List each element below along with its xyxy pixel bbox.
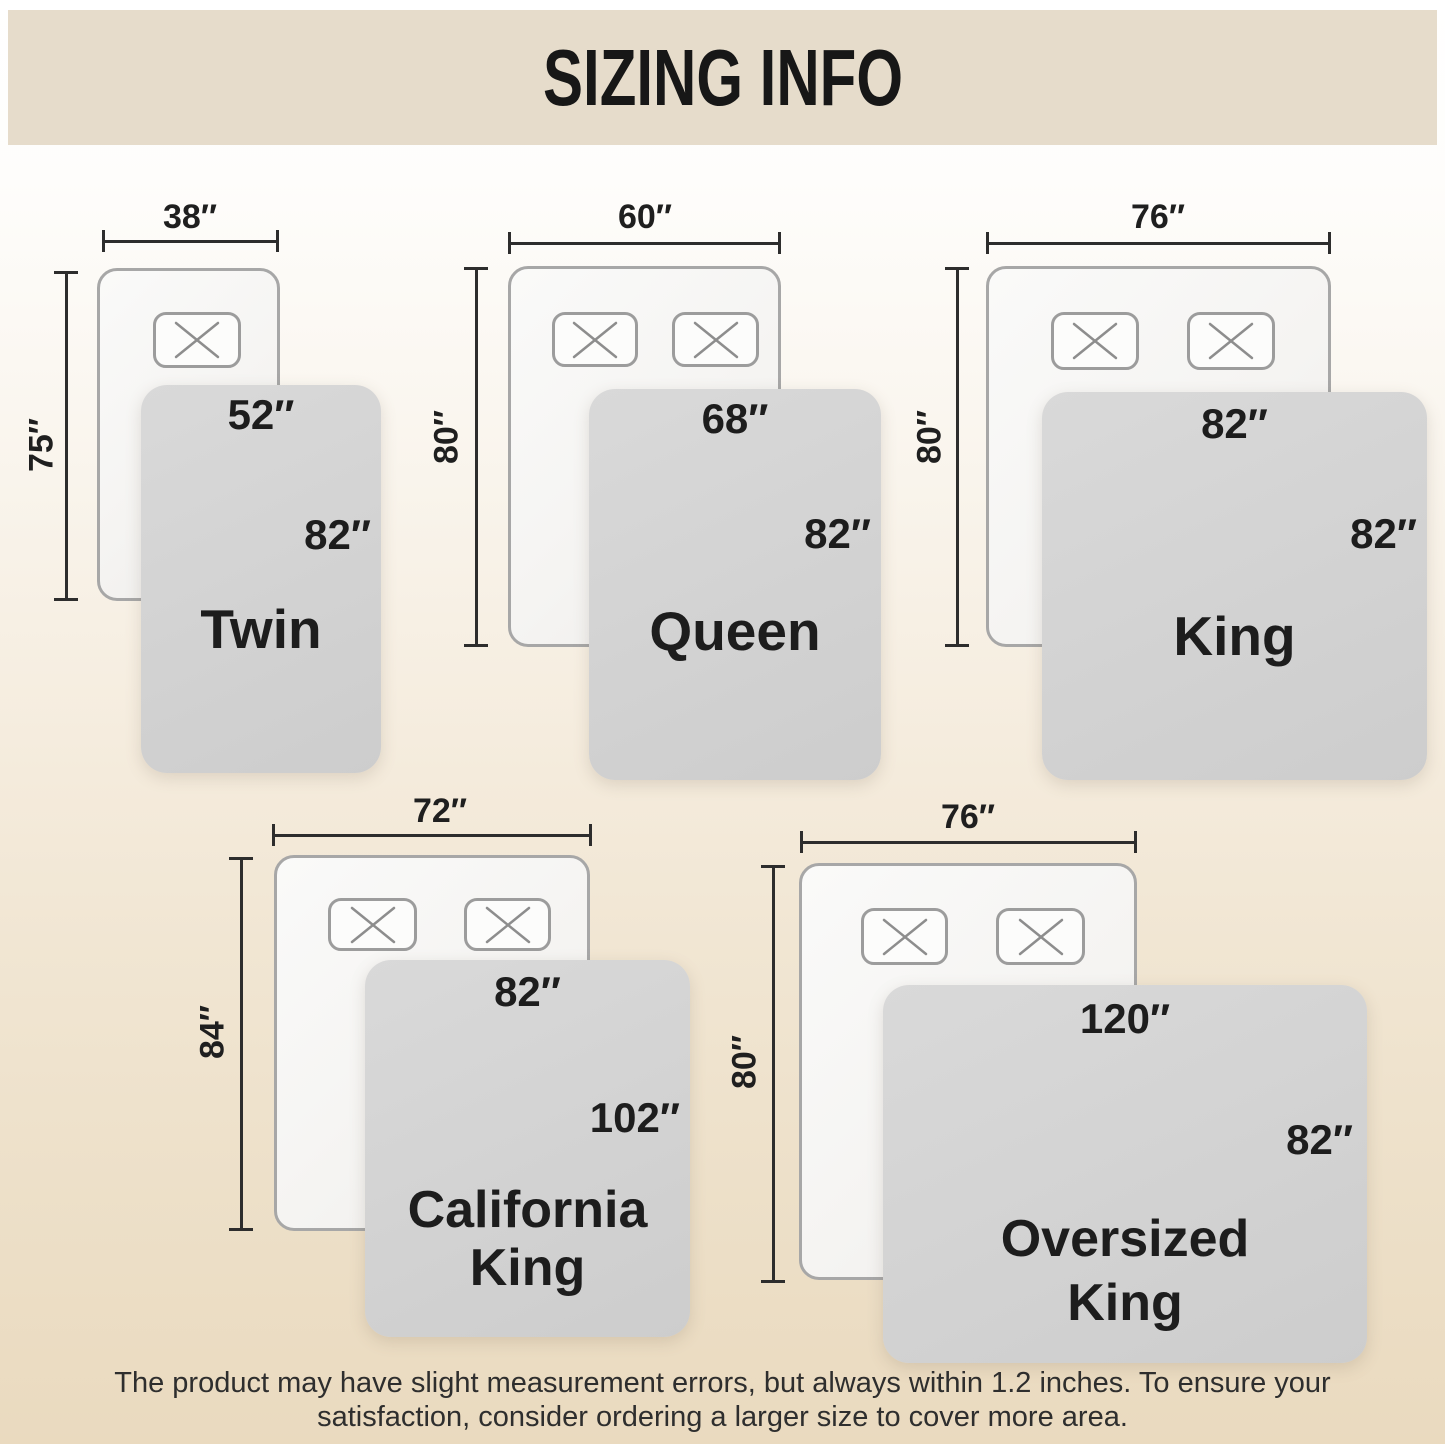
- footer-note-line1: The product may have slight measurement …: [0, 1366, 1445, 1400]
- pillow: [861, 908, 948, 965]
- blanket-width-label: 120″: [1080, 995, 1170, 1043]
- pillow-x-icon: [880, 916, 930, 958]
- bed-length-label: 80″: [911, 410, 950, 464]
- blanket-size-name-line2: King: [1067, 1274, 1183, 1332]
- blanket-length-label: 102″: [590, 1094, 680, 1142]
- length-dimension-line: [65, 271, 68, 601]
- pillow: [1187, 312, 1275, 370]
- pillow-x-icon: [348, 904, 398, 946]
- bed-width-label: 72″: [413, 792, 467, 831]
- pillow-x-icon: [1016, 916, 1066, 958]
- bed-width-label: 60″: [618, 198, 672, 237]
- bed-length-label: 80″: [726, 1035, 765, 1089]
- pillow-x-icon: [691, 319, 741, 361]
- blanket-width-label: 68″: [702, 395, 769, 443]
- blanket-length-label: 82″: [1350, 510, 1417, 558]
- bed-width-label: 76″: [1131, 198, 1185, 237]
- pillow-x-icon: [570, 319, 620, 361]
- pillow-x-icon: [483, 904, 533, 946]
- header-band: SIZING INFO: [8, 10, 1437, 145]
- blanket: 82″ 82″ King: [1042, 392, 1427, 780]
- pillow: [552, 312, 638, 367]
- pillow-x-icon: [172, 319, 222, 361]
- bed-width-label: 38″: [163, 198, 217, 237]
- bed-length-label: 75″: [23, 418, 62, 472]
- blanket-size-name: Twin: [200, 597, 321, 661]
- length-dimension-line: [956, 267, 959, 647]
- length-dimension-line: [772, 865, 775, 1283]
- blanket-size-name-line1: California: [408, 1181, 648, 1239]
- pillow: [996, 908, 1085, 965]
- blanket: 52″ 82″ Twin: [141, 385, 381, 773]
- sizing-info-infographic: SIZING INFO 38″ 75″ 52″ 82″ Twin 60″ 80″: [0, 0, 1445, 1444]
- pillow-x-icon: [1206, 320, 1256, 362]
- pillow: [464, 898, 551, 951]
- pillow: [153, 312, 241, 368]
- bed-length-label: 84″: [194, 1005, 233, 1059]
- pillow-x-icon: [1070, 320, 1120, 362]
- pillow: [328, 898, 417, 951]
- blanket-size-name: Oversized King: [1001, 1207, 1250, 1335]
- blanket-width-label: 82″: [1201, 400, 1268, 448]
- blanket-length-label: 82″: [804, 510, 871, 558]
- blanket-width-label: 82″: [494, 968, 561, 1016]
- footer-note: The product may have slight measurement …: [0, 1366, 1445, 1434]
- width-dimension-line: [508, 242, 781, 245]
- bed-width-label: 76″: [941, 798, 995, 837]
- width-dimension-line: [272, 834, 592, 837]
- pillow: [672, 312, 759, 367]
- width-dimension-line: [986, 242, 1331, 245]
- blanket: 82″ 102″ California King: [365, 960, 690, 1337]
- width-dimension-line: [102, 240, 279, 243]
- footer-note-line2: satisfaction, consider ordering a larger…: [0, 1400, 1445, 1434]
- bed-length-label: 80″: [428, 410, 467, 464]
- blanket: 68″ 82″ Queen: [589, 389, 881, 780]
- blanket-size-name-line1: Oversized: [1001, 1210, 1250, 1268]
- width-dimension-line: [800, 841, 1137, 844]
- blanket: 120″ 82″ Oversized King: [883, 985, 1367, 1363]
- blanket-size-name: Queen: [649, 599, 820, 663]
- blanket-size-name: California King: [408, 1181, 648, 1297]
- pillow: [1051, 312, 1139, 370]
- page-title: SIZING INFO: [543, 32, 903, 124]
- blanket-size-name: King: [1173, 604, 1295, 668]
- blanket-size-name-line2: King: [470, 1239, 586, 1297]
- blanket-length-label: 82″: [304, 511, 371, 559]
- blanket-length-label: 82″: [1286, 1116, 1353, 1164]
- blanket-width-label: 52″: [228, 391, 295, 439]
- length-dimension-line: [475, 267, 478, 647]
- length-dimension-line: [240, 857, 243, 1231]
